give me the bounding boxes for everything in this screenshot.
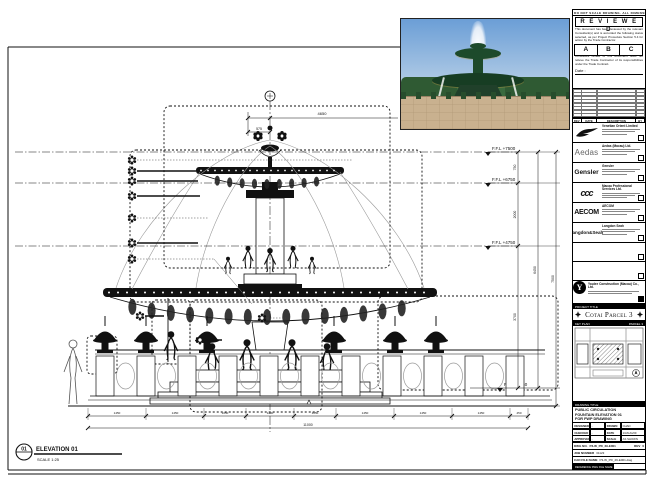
keynote-callout-icon	[128, 214, 136, 223]
empty-consultant-box-1	[572, 242, 646, 262]
scale-label: SCALE	[605, 435, 621, 442]
approved-value: -	[590, 435, 606, 442]
contractor-name: Youlee Construction (Macau) Co., Ltd.	[588, 283, 643, 290]
scale-person	[64, 340, 82, 404]
svg-text:1450: 1450	[172, 411, 179, 415]
svg-text:7500: 7500	[551, 275, 555, 283]
elevation-title: ELEVATION 01	[36, 447, 78, 453]
finial-ornament-icon	[637, 310, 643, 319]
key-plan	[572, 325, 646, 402]
finial-ornament-icon	[575, 310, 581, 319]
svg-text:1450: 1450	[478, 411, 485, 415]
top-dim-label: 4650	[318, 111, 328, 116]
consultant-checkbox	[638, 215, 644, 221]
consultant-checkbox	[638, 135, 644, 141]
reviewed-stamp-body1: This document has been reviewed by the r…	[575, 28, 643, 43]
fountain-reference-photo	[400, 18, 570, 130]
consultant-venetian-orient: Venetian Orient Limited	[572, 122, 646, 143]
svg-text:1450: 1450	[420, 411, 427, 415]
photo-balustrade-figures	[401, 92, 569, 99]
consultant-langdon-seah: Langdon&Seah Langdon Seah	[572, 222, 646, 243]
title-fields-grid: DESIGNED - DRAWN CHAD CHECKED - DATE 13/…	[572, 422, 646, 443]
elevation-scale: SCALE 1:25	[37, 457, 60, 462]
contractor-block: Y Youlee Construction (Macau) Co., Ltd.	[572, 280, 646, 304]
consultant-name: Macau Professional Services Ltd.	[602, 185, 643, 192]
consultant-name: Aedas (Macau) Ltd.	[602, 145, 643, 149]
reference-dwg-row: REFERENCE DWG FILE NAME	[572, 463, 646, 470]
scale-value: AS SHOWN	[621, 435, 645, 442]
consultant-checkbox	[638, 235, 644, 241]
lamp-bollard	[134, 316, 158, 353]
svg-text:6450: 6450	[533, 266, 537, 274]
consultant-aecom: AECOM AECOM	[572, 202, 646, 223]
keynote-callout-icon	[128, 167, 136, 176]
consultant-name: Langdon Seah	[602, 225, 643, 229]
level-label-7500: F.F.L +7500	[492, 146, 516, 151]
reviewed-stamp: R E V I E W E D This document has been r…	[572, 15, 646, 89]
svg-text:450: 450	[516, 411, 521, 415]
contractor-checkbox	[638, 296, 644, 302]
revision-table	[572, 88, 646, 118]
lamp-bollard	[424, 316, 448, 353]
consultant-aedas: Aedas Aedas (Macau) Ltd.	[572, 142, 646, 163]
empty-consultant-box-2	[572, 261, 646, 281]
svg-text:1450: 1450	[362, 411, 369, 415]
consultant-macau-professional: ccc Macau Professional Services Ltd.	[572, 182, 646, 203]
elevation-title-block: 01 ELEVATION 01 SCALE 1:25	[16, 444, 122, 462]
consultant-checkbox	[638, 175, 644, 181]
drawing-title: PUBLIC CIRCULATION FOUNTAIN ELEVATION 01…	[572, 406, 646, 423]
top-subdim-label: 575	[256, 127, 262, 131]
svg-text:2000: 2000	[513, 211, 517, 219]
lamp-bollard	[93, 316, 117, 353]
svg-text:11000: 11000	[303, 423, 313, 427]
title-block-sidebar: DO NOT SCALE DRAWING. ALL DIMENSIONS TO …	[572, 10, 646, 470]
svg-text:1450: 1450	[114, 411, 121, 415]
stamp-date-label: Date :	[575, 68, 643, 75]
consultant-checkbox	[638, 195, 644, 201]
langdon-seah-logo-icon: Langdon&Seah	[573, 223, 600, 242]
gensler-logo-icon: Gensler	[573, 163, 600, 182]
keynote-callout-icon	[128, 177, 136, 186]
aedas-logo-icon: Aedas	[573, 143, 600, 162]
keynote-callout-icon	[128, 255, 136, 264]
lamp-bollard	[383, 316, 407, 353]
lamp-bollard	[195, 316, 219, 353]
consultant-name: Venetian Orient Limited	[602, 125, 643, 129]
consultant-name: AECOM	[602, 205, 643, 209]
elevation-bubble-number: 01	[21, 447, 27, 453]
svg-text:1050: 1050	[222, 411, 229, 415]
approved-label: APPROVED	[572, 435, 590, 442]
mps-logo-icon: ccc	[573, 183, 600, 202]
svg-text:750: 750	[513, 165, 517, 171]
reference-dwg-label: REFERENCE DWG FILE NAME	[573, 464, 614, 469]
aecom-logo-icon: AECOM	[573, 203, 600, 222]
level-label-6750: F.F.L +6750	[492, 177, 516, 182]
svg-text:3700: 3700	[513, 313, 517, 321]
svg-text:1050: 1050	[312, 411, 319, 415]
consultant-checkbox	[638, 254, 644, 260]
keynote-callout-icon	[136, 312, 144, 321]
consultant-gensler: Gensler Gensler	[572, 162, 646, 183]
drawing-sheet: 4650 575	[0, 0, 650, 488]
consultant-name: Gensler	[602, 165, 643, 169]
photo-stone-wall	[401, 96, 569, 129]
svg-text:1200: 1200	[267, 411, 274, 415]
project-name: Cotai Parcel 3	[585, 311, 633, 319]
consultant-checkbox	[638, 155, 644, 161]
keynote-callout-icon	[128, 192, 136, 201]
level-label-4750: F.F.L +4750	[492, 240, 516, 245]
consultant-checkbox	[638, 273, 644, 279]
contractor-logo-icon: Y	[573, 281, 586, 303]
keynote-callout-icon	[128, 156, 136, 165]
reviewed-stamp-body2: Consultant review of this document does …	[575, 55, 643, 66]
venetian-orient-logo-icon	[573, 123, 600, 142]
reviewed-stamp-title: R E V I E W E D	[575, 17, 643, 27]
